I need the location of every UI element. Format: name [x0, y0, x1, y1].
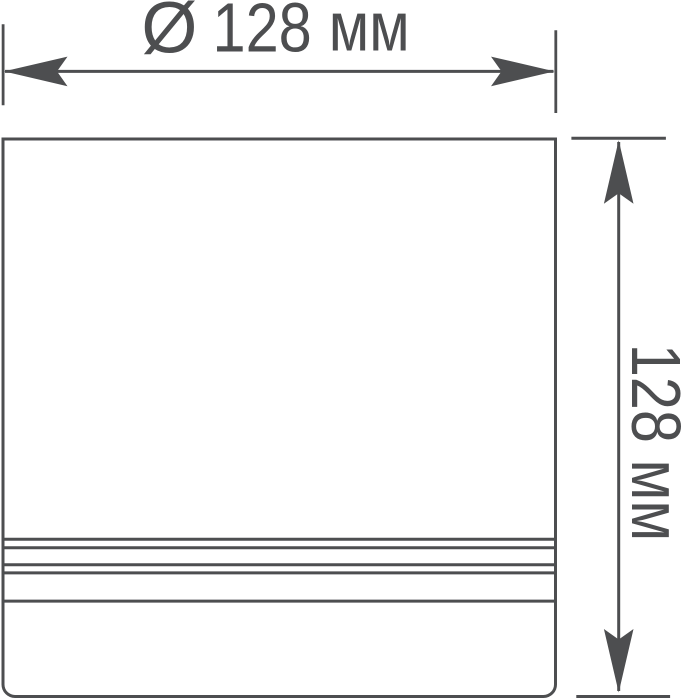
svg-text:мм: мм	[329, 0, 410, 66]
svg-text:Ø: Ø	[141, 0, 197, 69]
svg-text:128: 128	[213, 0, 312, 66]
svg-text:128 мм: 128 мм	[617, 344, 683, 542]
